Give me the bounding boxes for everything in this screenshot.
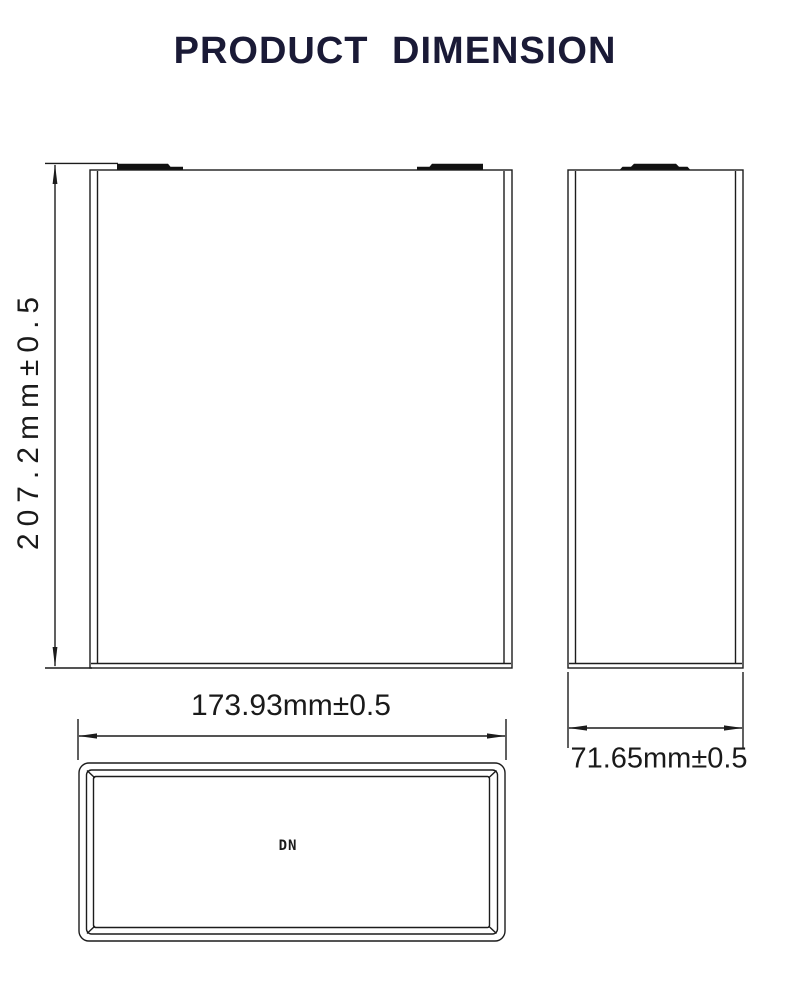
bottom-view-chamfer-tr (489, 771, 497, 779)
arrow-up-icon (53, 164, 58, 184)
side-terminal (620, 164, 690, 170)
arrow-right-icon (724, 725, 743, 730)
product-dimension-drawing: PRODUCT DIMENSION (0, 0, 790, 1000)
side-width-dimension-label: 71.65mm±0.5 (570, 743, 747, 776)
arrow-left-icon (78, 733, 97, 738)
arrow-left-icon (568, 725, 587, 730)
height-dimension (45, 163, 118, 668)
bottom-view-chamfer-br (489, 926, 497, 934)
bottom-view-chamfer-bl (87, 926, 95, 934)
top-width-dimension-label: 173.93mm±0.5 (191, 689, 391, 723)
side-width-dimension (568, 672, 743, 748)
arrow-right-icon (487, 733, 506, 738)
front-terminal-right (417, 164, 483, 170)
bottom-view-chamfer-tl (87, 771, 95, 779)
front-terminal-left (117, 164, 183, 170)
front-view-outline (90, 170, 512, 668)
arrow-down-icon (53, 647, 58, 667)
side-view-outline (568, 170, 743, 668)
cell-marking: DN (279, 838, 298, 854)
side-view (568, 164, 743, 668)
front-view (90, 164, 512, 668)
top-width-dimension (78, 719, 506, 760)
height-dimension-label: 207.2mm±0.5 (12, 290, 46, 550)
drawing-svg (0, 0, 790, 1000)
